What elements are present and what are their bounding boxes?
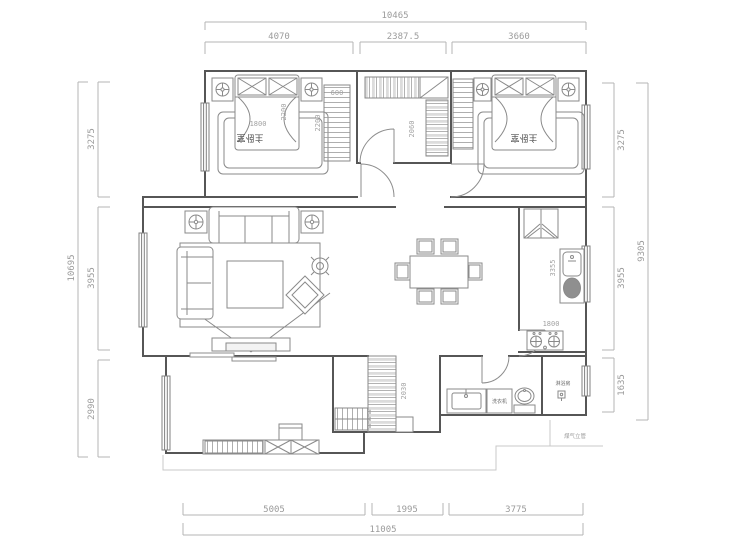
dim-left-seg1-line bbox=[98, 82, 110, 197]
dim-right-overall: 9305 bbox=[637, 240, 647, 262]
closet-corner-diagonal bbox=[420, 77, 448, 98]
dim-bottom-overall: 11005 bbox=[369, 525, 396, 535]
dining-chair bbox=[417, 239, 434, 254]
toilet bbox=[514, 388, 535, 413]
storage-cabinet-height-dim: 2030 bbox=[400, 383, 408, 400]
dining-chair bbox=[395, 263, 410, 280]
dim-bottom-seg3: 3775 bbox=[505, 505, 527, 515]
dim-top-seg2-line bbox=[360, 42, 446, 54]
door-balcony-sliding bbox=[190, 353, 276, 361]
kitchen bbox=[524, 209, 584, 350]
window-balcony-west bbox=[162, 376, 170, 450]
shower-room-label: 淋浴房 bbox=[555, 380, 570, 387]
wardrobe-bedroom2 bbox=[453, 79, 473, 149]
window-shower-east bbox=[582, 366, 590, 396]
dim-right-seg3: 1635 bbox=[617, 374, 627, 396]
closet-side-shelf bbox=[426, 100, 448, 156]
dining-chair bbox=[417, 289, 434, 304]
lamp-icon bbox=[305, 83, 318, 96]
floor-drain-icon bbox=[558, 391, 565, 401]
dining-chair bbox=[467, 263, 482, 280]
stove bbox=[527, 331, 563, 350]
dim-right-seg2-line bbox=[602, 207, 614, 350]
tv-screen bbox=[226, 343, 276, 351]
bed1-length-dim: 2200 bbox=[280, 104, 288, 121]
storage-cabinet-tall bbox=[368, 356, 396, 432]
washbasin bbox=[447, 389, 486, 413]
wardrobe-depth-dim: 600 bbox=[331, 89, 344, 97]
kitchen-counter-width-dim: 1800 bbox=[543, 320, 560, 328]
tv-cabinet bbox=[212, 338, 290, 351]
armchair bbox=[286, 276, 324, 314]
balcony-bottom-cabinet bbox=[203, 440, 319, 454]
side-table-right bbox=[301, 211, 323, 233]
lamp-icon bbox=[216, 83, 229, 96]
lamp-icon bbox=[477, 84, 489, 96]
floor-plan-drawing: 1800 2200 主卧室 600 2200 2060 bbox=[0, 0, 740, 540]
door-bedroom2 bbox=[451, 164, 484, 197]
dining-chair bbox=[441, 289, 458, 304]
closet-top-shelf bbox=[365, 77, 420, 98]
dim-left-seg1: 3275 bbox=[87, 128, 97, 150]
sink-bowl bbox=[564, 278, 581, 298]
kitchen-sink bbox=[560, 249, 584, 303]
nightstand-left bbox=[474, 78, 491, 101]
window-bedroom1-west bbox=[201, 103, 209, 171]
dim-left-seg3-line bbox=[98, 360, 110, 457]
dim-top-seg1: 4070 bbox=[268, 32, 290, 42]
dim-left-seg2: 3955 bbox=[87, 267, 97, 289]
dim-left-overall: 10695 bbox=[67, 254, 77, 281]
gas-riser-note: 煤气立管 bbox=[564, 432, 587, 440]
dim-top-seg3: 3660 bbox=[508, 32, 530, 42]
door-bathroom bbox=[482, 356, 509, 383]
side-table-left bbox=[185, 211, 207, 233]
dim-left-seg3: 2990 bbox=[87, 398, 97, 420]
lamp-icon bbox=[305, 215, 319, 229]
dining-chair bbox=[441, 239, 458, 254]
nightstand-left bbox=[212, 78, 233, 101]
balcony bbox=[203, 356, 413, 454]
refrigerator bbox=[524, 209, 558, 238]
lamp-icon bbox=[189, 215, 203, 229]
coffee-table bbox=[227, 261, 283, 308]
bed1-width-dim: 1800 bbox=[250, 120, 267, 128]
hallway-closets bbox=[365, 77, 448, 156]
dim-top-overall: 10465 bbox=[381, 11, 408, 21]
dim-top-seg1-line bbox=[205, 42, 353, 54]
dining-table bbox=[410, 256, 468, 288]
door-bedroom1 bbox=[361, 164, 394, 197]
kitchen-counter-length-dim: 3355 bbox=[549, 260, 557, 277]
dim-right-seg2: 3955 bbox=[617, 267, 627, 289]
dim-right-seg1: 3275 bbox=[617, 129, 627, 151]
dim-right-seg3-line bbox=[602, 358, 614, 412]
dim-right-seg1-line bbox=[602, 83, 614, 197]
dining-set bbox=[395, 239, 482, 304]
dim-top-seg2: 2387.5 bbox=[387, 32, 420, 42]
living-room bbox=[177, 207, 330, 352]
window-living-west bbox=[139, 233, 147, 327]
closet-width-dim: 2060 bbox=[408, 121, 416, 138]
storage-cabinet-notch bbox=[396, 417, 413, 432]
sofa-two-seat bbox=[177, 247, 213, 319]
dim-top-seg3-line bbox=[452, 42, 586, 54]
sofa-three-seat bbox=[209, 207, 299, 243]
dim-top-overall-line bbox=[205, 22, 586, 30]
bedroom-left bbox=[212, 75, 350, 174]
door-hall-closet bbox=[360, 129, 394, 163]
washing-machine-label: 洗衣机 bbox=[492, 398, 507, 405]
wardrobe-length-dim: 2200 bbox=[314, 115, 322, 132]
nightstand-right bbox=[558, 78, 579, 101]
lamp-icon bbox=[562, 83, 575, 96]
nightstand-right bbox=[301, 78, 322, 101]
bedroom-right bbox=[453, 75, 584, 174]
bedroom-right-label: 主卧室 bbox=[510, 132, 537, 144]
dim-left-seg2-line bbox=[98, 207, 110, 350]
dim-bottom-seg1: 5005 bbox=[263, 505, 285, 515]
dim-bottom-seg2: 1995 bbox=[396, 505, 418, 515]
bedroom-left-label: 主卧室 bbox=[236, 132, 263, 144]
floor-plan-page: 1800 2200 主卧室 600 2200 2060 bbox=[0, 0, 740, 540]
balcony-stool bbox=[279, 424, 302, 440]
